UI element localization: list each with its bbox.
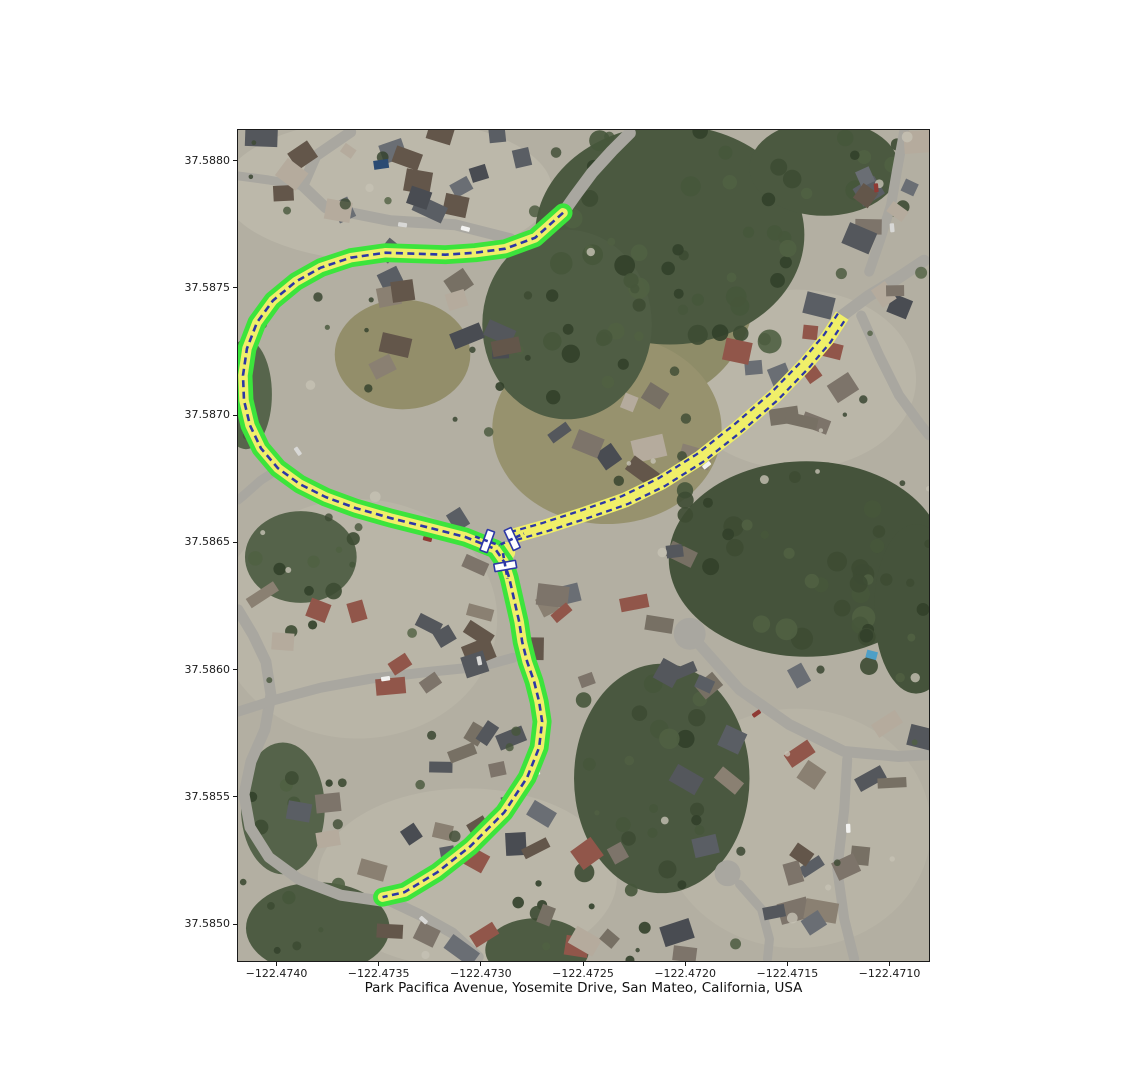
- tree: [308, 620, 317, 629]
- tree: [722, 175, 737, 190]
- tree: [688, 709, 705, 726]
- tree: [702, 558, 719, 575]
- tree: [338, 778, 347, 787]
- x-tick-mark: [889, 962, 890, 966]
- tree: [325, 779, 332, 786]
- tree: [783, 170, 802, 189]
- tree: [678, 507, 694, 523]
- ground-patch: [627, 461, 632, 466]
- x-tick-label: −122.4715: [742, 967, 832, 981]
- tree: [583, 758, 596, 771]
- tree: [484, 427, 494, 437]
- ground-patch: [819, 428, 823, 432]
- y-tick-label: 37.5860: [135, 663, 230, 677]
- building: [375, 677, 406, 696]
- tree: [672, 244, 683, 255]
- building: [315, 792, 342, 813]
- tree: [742, 520, 753, 531]
- tree: [761, 531, 769, 539]
- tree: [801, 188, 812, 199]
- tree: [313, 292, 322, 301]
- tree: [659, 728, 680, 749]
- tree: [758, 330, 782, 354]
- tree: [249, 174, 254, 179]
- tree: [594, 810, 599, 815]
- y-tick-label: 37.5855: [135, 790, 230, 804]
- ground-patch: [651, 458, 656, 463]
- tree: [634, 331, 644, 341]
- ground-patch: [365, 184, 373, 192]
- tree: [623, 273, 638, 288]
- tree: [631, 244, 648, 261]
- tree: [562, 345, 580, 363]
- tree: [867, 331, 873, 337]
- tree: [347, 532, 360, 545]
- tree: [349, 562, 355, 568]
- tree: [649, 804, 658, 813]
- vehicle: [846, 824, 851, 833]
- tree: [677, 880, 686, 889]
- tree: [621, 831, 636, 846]
- building: [488, 130, 506, 143]
- tree: [647, 828, 657, 838]
- tree: [618, 359, 629, 370]
- tree: [427, 731, 436, 740]
- tree: [784, 548, 795, 559]
- tree: [688, 325, 708, 345]
- building: [245, 130, 278, 147]
- tree: [727, 273, 737, 283]
- tree: [453, 417, 458, 422]
- tree: [604, 132, 614, 142]
- tree: [730, 297, 749, 316]
- tree: [834, 859, 841, 866]
- tree: [753, 615, 770, 632]
- tree: [307, 555, 319, 567]
- tree: [285, 771, 299, 785]
- x-tick-mark: [378, 962, 379, 966]
- tree: [678, 305, 688, 315]
- tree: [681, 413, 691, 423]
- y-tick-mark: [233, 542, 237, 543]
- tree: [550, 252, 573, 275]
- tree: [407, 628, 417, 638]
- tree: [864, 500, 882, 518]
- x-tick-label: −122.4730: [436, 967, 526, 981]
- x-tick-mark: [276, 962, 277, 966]
- plot-area: [237, 129, 930, 962]
- ground-patch: [902, 132, 913, 143]
- tree: [670, 366, 680, 376]
- x-tick-mark: [583, 962, 584, 966]
- figure-canvas: { "figure": { "xlabel": "Park Pacifica A…: [0, 0, 1135, 1080]
- ground-patch: [306, 380, 316, 390]
- tree: [576, 692, 592, 708]
- building: [273, 185, 294, 202]
- tree: [304, 586, 314, 596]
- building: [666, 544, 684, 559]
- tree: [251, 140, 256, 145]
- tree: [779, 240, 796, 257]
- tree: [843, 413, 847, 417]
- tree: [336, 547, 342, 553]
- tree: [915, 267, 927, 279]
- tree: [282, 891, 295, 904]
- vehicle: [890, 223, 895, 232]
- x-tick-label: −122.4740: [232, 967, 322, 981]
- tree: [873, 525, 886, 538]
- tree: [589, 903, 595, 909]
- tree: [658, 860, 676, 878]
- tree: [325, 513, 333, 521]
- tree: [674, 289, 684, 299]
- tree: [770, 159, 787, 176]
- tree: [495, 382, 504, 391]
- tree: [730, 938, 741, 949]
- tree: [860, 629, 874, 643]
- tree: [524, 291, 532, 299]
- tree: [912, 739, 918, 745]
- x-tick-mark: [787, 962, 788, 966]
- tree: [384, 197, 391, 204]
- tree: [333, 819, 343, 829]
- tree: [880, 573, 892, 585]
- tree: [543, 332, 562, 351]
- tree: [616, 817, 631, 832]
- ground-patch: [815, 469, 820, 474]
- ground-patch: [785, 751, 791, 757]
- tree: [805, 574, 819, 588]
- ground-patch: [760, 475, 769, 484]
- ground-patch: [587, 248, 595, 256]
- tree: [895, 673, 904, 682]
- satellite-map: [238, 130, 929, 961]
- x-tick-mark: [480, 962, 481, 966]
- tree: [546, 390, 560, 404]
- tree: [340, 198, 351, 209]
- tree: [625, 884, 638, 897]
- ground-patch: [260, 530, 265, 535]
- tree: [614, 476, 624, 486]
- building: [877, 777, 906, 789]
- tree: [850, 575, 868, 593]
- tree: [318, 927, 323, 932]
- ground-patch: [285, 567, 291, 573]
- tree: [899, 480, 905, 486]
- tree: [325, 325, 330, 330]
- tree: [546, 289, 558, 301]
- tree: [695, 825, 705, 835]
- tree: [917, 603, 929, 616]
- tree: [525, 355, 531, 361]
- x-tick-mark: [685, 962, 686, 966]
- tree: [736, 847, 745, 856]
- tree: [283, 207, 291, 215]
- tree: [542, 942, 550, 950]
- tree: [776, 618, 798, 640]
- tree: [677, 492, 694, 509]
- x-tick-label: −122.4710: [845, 967, 935, 981]
- tree: [632, 705, 648, 721]
- y-tick-mark: [233, 669, 237, 670]
- tree: [661, 262, 675, 276]
- y-tick-label: 37.5875: [135, 281, 230, 295]
- building: [376, 923, 403, 938]
- tree: [722, 528, 734, 540]
- tree: [274, 947, 281, 954]
- tree: [690, 803, 704, 817]
- x-tick-label: −122.4720: [640, 967, 730, 981]
- tree: [635, 948, 639, 952]
- x-tick-label: −122.4725: [538, 967, 628, 981]
- tree: [596, 332, 610, 346]
- x-tick-label: −122.4735: [334, 967, 424, 981]
- tree: [511, 726, 521, 736]
- tree: [266, 677, 272, 683]
- tree: [614, 255, 635, 276]
- tree: [836, 268, 847, 279]
- ground-patch: [661, 817, 669, 825]
- tree: [364, 384, 372, 392]
- tree: [529, 205, 541, 217]
- tree: [837, 130, 854, 146]
- ground-patch: [421, 951, 429, 959]
- tree: [469, 347, 475, 353]
- y-tick-label: 37.5865: [135, 535, 230, 549]
- tree: [415, 780, 425, 790]
- tree: [726, 539, 744, 557]
- y-tick-mark: [233, 160, 237, 161]
- x-axis-label: Park Pacifica Avenue, Yosemite Drive, Sa…: [237, 980, 930, 996]
- tree: [681, 542, 685, 546]
- tree: [712, 324, 729, 341]
- tree: [681, 176, 701, 196]
- tree: [607, 238, 615, 246]
- tree: [267, 902, 275, 910]
- tree: [780, 256, 792, 268]
- tree: [859, 395, 867, 403]
- tree: [639, 922, 651, 934]
- vehicle: [874, 183, 879, 192]
- tree: [907, 634, 915, 642]
- y-tick-mark: [233, 924, 237, 925]
- ground-patch: [370, 491, 381, 502]
- tree: [743, 227, 754, 238]
- tree: [624, 756, 634, 766]
- tree: [719, 146, 733, 160]
- y-tick-label: 37.5880: [135, 154, 230, 168]
- tree: [602, 376, 615, 389]
- tree: [449, 831, 461, 843]
- tree: [325, 583, 342, 600]
- y-tick-label: 37.5850: [135, 917, 230, 931]
- ground-patch: [911, 673, 920, 682]
- ground-patch: [787, 913, 798, 924]
- tree: [273, 563, 285, 575]
- ground-patch: [657, 548, 667, 558]
- tree: [240, 879, 247, 886]
- tree: [633, 298, 646, 311]
- tree: [535, 880, 541, 886]
- y-tick-mark: [233, 796, 237, 797]
- tree: [834, 600, 851, 617]
- tree: [563, 324, 574, 335]
- tree: [851, 559, 869, 577]
- tree: [827, 552, 847, 572]
- tree: [369, 297, 374, 302]
- ground-patch: [890, 856, 895, 861]
- tree: [292, 941, 301, 950]
- y-tick-label: 37.5870: [135, 408, 230, 422]
- ground-patch: [825, 884, 831, 890]
- tree: [692, 294, 704, 306]
- tree: [703, 498, 713, 508]
- building: [390, 279, 415, 303]
- tree: [551, 147, 562, 158]
- tree: [733, 326, 749, 342]
- tree: [691, 815, 701, 825]
- tree: [512, 897, 524, 909]
- y-tick-mark: [233, 287, 237, 288]
- tree: [248, 551, 263, 566]
- tree: [355, 523, 363, 531]
- tree: [364, 328, 369, 333]
- tree: [906, 579, 914, 587]
- tree: [762, 193, 776, 207]
- tree: [870, 539, 884, 553]
- tree: [850, 150, 860, 160]
- building: [886, 285, 904, 296]
- tree: [770, 273, 785, 288]
- building: [271, 632, 294, 651]
- tree: [789, 471, 801, 483]
- building: [802, 325, 818, 341]
- building: [429, 762, 452, 773]
- tree: [506, 743, 514, 751]
- tree: [816, 666, 824, 674]
- y-tick-mark: [233, 415, 237, 416]
- figure: Park Pacifica Avenue, Yosemite Drive, Sa…: [0, 0, 1135, 1080]
